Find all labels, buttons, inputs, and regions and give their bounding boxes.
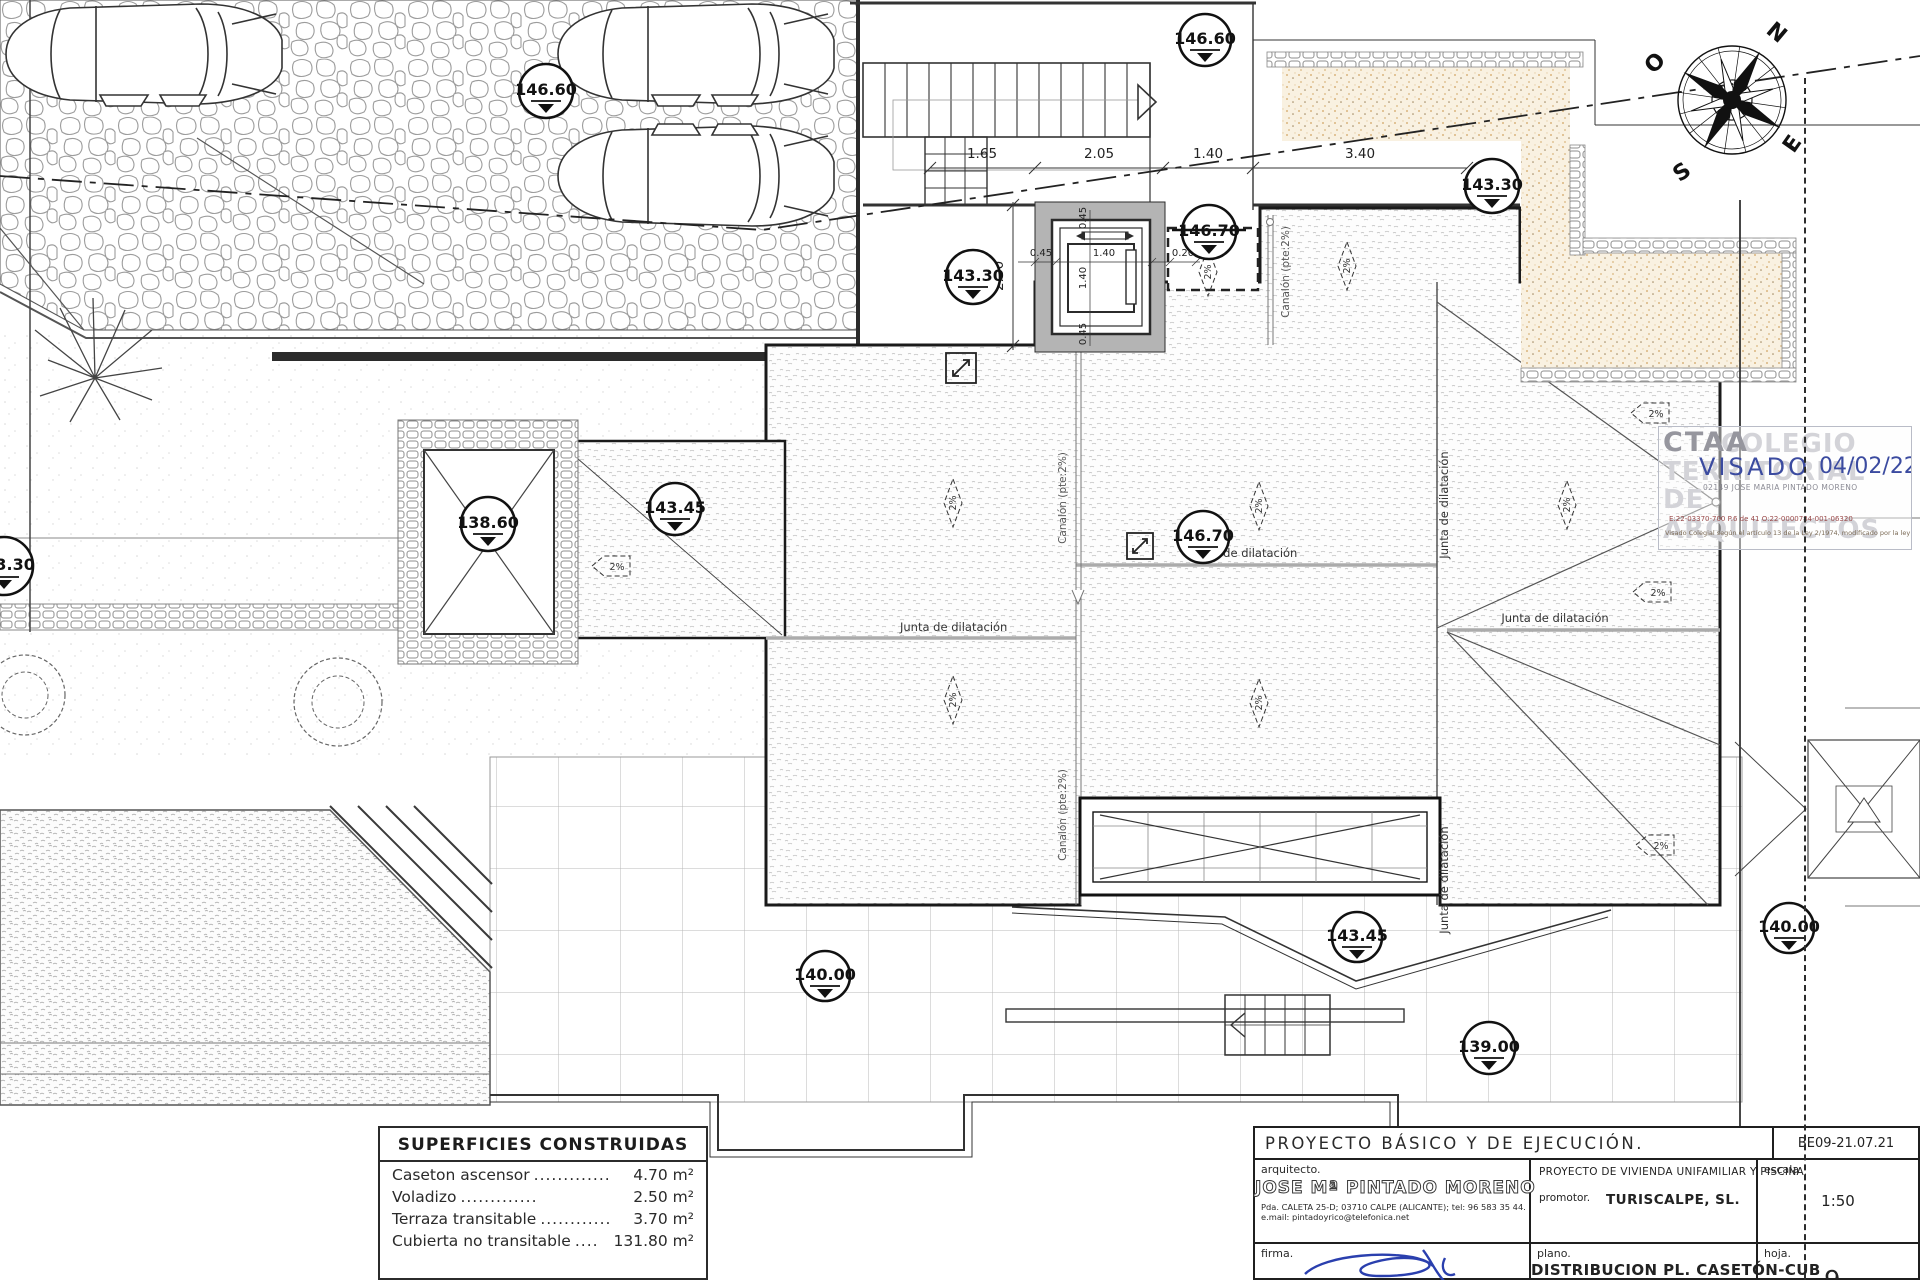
- row-leader: .............: [530, 1166, 634, 1184]
- svg-text:2%: 2%: [1650, 588, 1665, 599]
- visado-stamp: COLEGIO TERRITORIAL DE ARQUITECTOS CTAA …: [1658, 426, 1912, 550]
- row-value: 3.70 m²: [633, 1210, 694, 1228]
- title-block: PROYECTO BÁSICO Y DE EJECUCIÓN. BE09-21.…: [1253, 1126, 1920, 1280]
- stamp-colegiado: 02149 JOSE MARIA PINTADO MORENO: [1703, 483, 1858, 492]
- svg-text:1.65: 1.65: [967, 146, 997, 162]
- row-value: 4.70 m²: [633, 1166, 694, 1184]
- signature: [1295, 1248, 1485, 1280]
- scale-label: escala: [1758, 1160, 1918, 1176]
- svg-text:N: N: [1761, 18, 1791, 49]
- svg-text:3.40: 3.40: [1345, 146, 1375, 162]
- row-leader: .............: [456, 1188, 633, 1206]
- sheet-label: hoja.: [1758, 1244, 1918, 1260]
- architect-label: arquitecto.: [1255, 1160, 1529, 1176]
- stamp-visado: VISADO: [1699, 453, 1810, 481]
- svg-text:2%: 2%: [948, 692, 959, 707]
- svg-text:143.30: 143.30: [0, 555, 35, 574]
- svg-text:1.40: 1.40: [1078, 267, 1089, 289]
- svg-text:2%: 2%: [1342, 258, 1353, 273]
- plan-linework: 1.65 2.05 1.40 3.40 2.30 0.45 1.40 0.20 …: [0, 0, 1920, 1280]
- svg-text:Junta de dilatación: Junta de dilatación: [1437, 451, 1451, 559]
- svg-text:Junta de dilatación: Junta de dilatación: [1437, 826, 1451, 934]
- row-label: Cubierta no transitable: [392, 1232, 571, 1250]
- svg-text:O: O: [1640, 48, 1671, 79]
- svg-text:S: S: [1669, 158, 1696, 188]
- svg-text:Canalón (pte:2%): Canalón (pte:2%): [1057, 452, 1069, 544]
- svg-text:Canalón (pte:2%): Canalón (pte:2%): [1057, 769, 1069, 861]
- svg-text:Junta de dilatación: Junta de dilatación: [899, 620, 1007, 634]
- promoter-label: promotor.: [1531, 1192, 1590, 1208]
- row-label: Caseton ascensor: [392, 1166, 530, 1184]
- scale-value: 1:50: [1758, 1192, 1918, 1210]
- svg-text:Canalón (pte:2%): Canalón (pte:2%): [1280, 226, 1292, 318]
- svg-text:2%: 2%: [1653, 841, 1668, 852]
- table-row: Cubierta no transitable .... 131.80 m²: [380, 1228, 706, 1250]
- svg-text:2%: 2%: [1562, 497, 1573, 512]
- svg-text:2%: 2%: [948, 495, 959, 510]
- svg-text:143.30: 143.30: [1461, 175, 1523, 194]
- plan-name: DISTRIBUCION PL. CASETÓN-CUB: [1531, 1261, 1756, 1279]
- stamp-refs: E:22-03370-700 P.6 de 41 O:22-0000784-00…: [1669, 515, 1853, 523]
- svg-text:2%: 2%: [1648, 409, 1663, 420]
- neighbor-roof: [1735, 740, 1920, 878]
- row-label: Terraza transitable: [392, 1210, 536, 1228]
- svg-text:0.45: 0.45: [1078, 207, 1089, 229]
- stone-path: [0, 604, 398, 630]
- row-value: 131.80 m²: [614, 1232, 694, 1250]
- svg-text:138.60: 138.60: [457, 513, 519, 532]
- table-row: Voladizo ............. 2.50 m²: [380, 1184, 706, 1206]
- project-code: BE09-21.07.21: [1772, 1128, 1918, 1158]
- svg-text:146.60: 146.60: [1174, 29, 1236, 48]
- areas-table: SUPERFICIES CONSTRUIDAS Caseton ascensor…: [378, 1126, 708, 1280]
- stair-direction-arrow: [1138, 85, 1156, 119]
- svg-text:2.05: 2.05: [1084, 146, 1114, 162]
- svg-text:146.60: 146.60: [515, 80, 577, 99]
- project-type: PROYECTO DE VIVIENDA UNIFAMILIAR Y PISCI…: [1531, 1160, 1756, 1178]
- table-row: Caseton ascensor ............. 4.70 m²: [380, 1162, 706, 1184]
- svg-text:Junta de dilatación: Junta de dilatación: [1500, 611, 1608, 625]
- svg-text:2%: 2%: [609, 562, 624, 573]
- svg-text:139.00: 139.00: [1458, 1037, 1520, 1056]
- svg-text:143.30: 143.30: [942, 266, 1004, 285]
- row-leader: ....: [571, 1232, 614, 1250]
- svg-text:0.45: 0.45: [1030, 248, 1052, 259]
- architect-name: JOSE Mª PINTADO MORENO: [1255, 1178, 1529, 1198]
- row-label: Voladizo: [392, 1188, 456, 1206]
- architect-address: Pda. CALETA 25-D; 03710 CALPE (ALICANTE)…: [1261, 1202, 1529, 1212]
- compass-rose: N O E S: [1640, 18, 1809, 188]
- architect-email: e.mail: pintadoyrico@telefonica.net: [1261, 1212, 1529, 1222]
- project-title: PROYECTO BÁSICO Y DE EJECUCIÓN.: [1255, 1128, 1772, 1158]
- stamp-date: 04/02/22: [1819, 454, 1912, 479]
- floor-plan-sheet: 1.65 2.05 1.40 3.40 2.30 0.45 1.40 0.20 …: [0, 0, 1920, 1280]
- svg-text:2%: 2%: [1254, 695, 1265, 710]
- car: [6, 4, 282, 106]
- areas-table-title: SUPERFICIES CONSTRUIDAS: [380, 1128, 706, 1162]
- svg-text:140.00: 140.00: [794, 965, 856, 984]
- svg-text:140.00: 140.00: [1758, 917, 1820, 936]
- pool-area: [0, 806, 492, 1105]
- table-row: Terraza transitable ............ 3.70 m²: [380, 1206, 706, 1228]
- plan-label: plano.: [1531, 1244, 1756, 1260]
- svg-text:E: E: [1778, 131, 1807, 158]
- svg-text:2%: 2%: [1203, 264, 1214, 279]
- svg-text:1.40: 1.40: [1193, 146, 1223, 162]
- stamp-legal: Visado Colegial según el artículo 13 de …: [1665, 529, 1912, 537]
- plot-boundary-dashed: [1804, 78, 1806, 1280]
- row-value: 2.50 m²: [633, 1188, 694, 1206]
- svg-text:143.45: 143.45: [644, 498, 706, 517]
- sheet-number: 9: [1824, 1266, 1841, 1280]
- svg-text:0.45: 0.45: [1078, 323, 1089, 345]
- car-bottom: [558, 124, 834, 226]
- row-leader: ............: [536, 1210, 633, 1228]
- car-top: [558, 4, 834, 106]
- svg-text:146.70: 146.70: [1172, 526, 1234, 545]
- level-marker: 143.30: [942, 250, 1004, 304]
- svg-text:1.40: 1.40: [1093, 248, 1115, 259]
- skylight-pergola: [1080, 798, 1440, 895]
- svg-text:2%: 2%: [1254, 498, 1265, 513]
- level-marker: 140.00: [1758, 903, 1820, 953]
- level-marker: 146.60: [1174, 14, 1236, 66]
- svg-text:143.45: 143.45: [1326, 926, 1388, 945]
- elevator-door: [1126, 250, 1136, 304]
- promoter-name: TURISCALPE, SL.: [1590, 1192, 1756, 1208]
